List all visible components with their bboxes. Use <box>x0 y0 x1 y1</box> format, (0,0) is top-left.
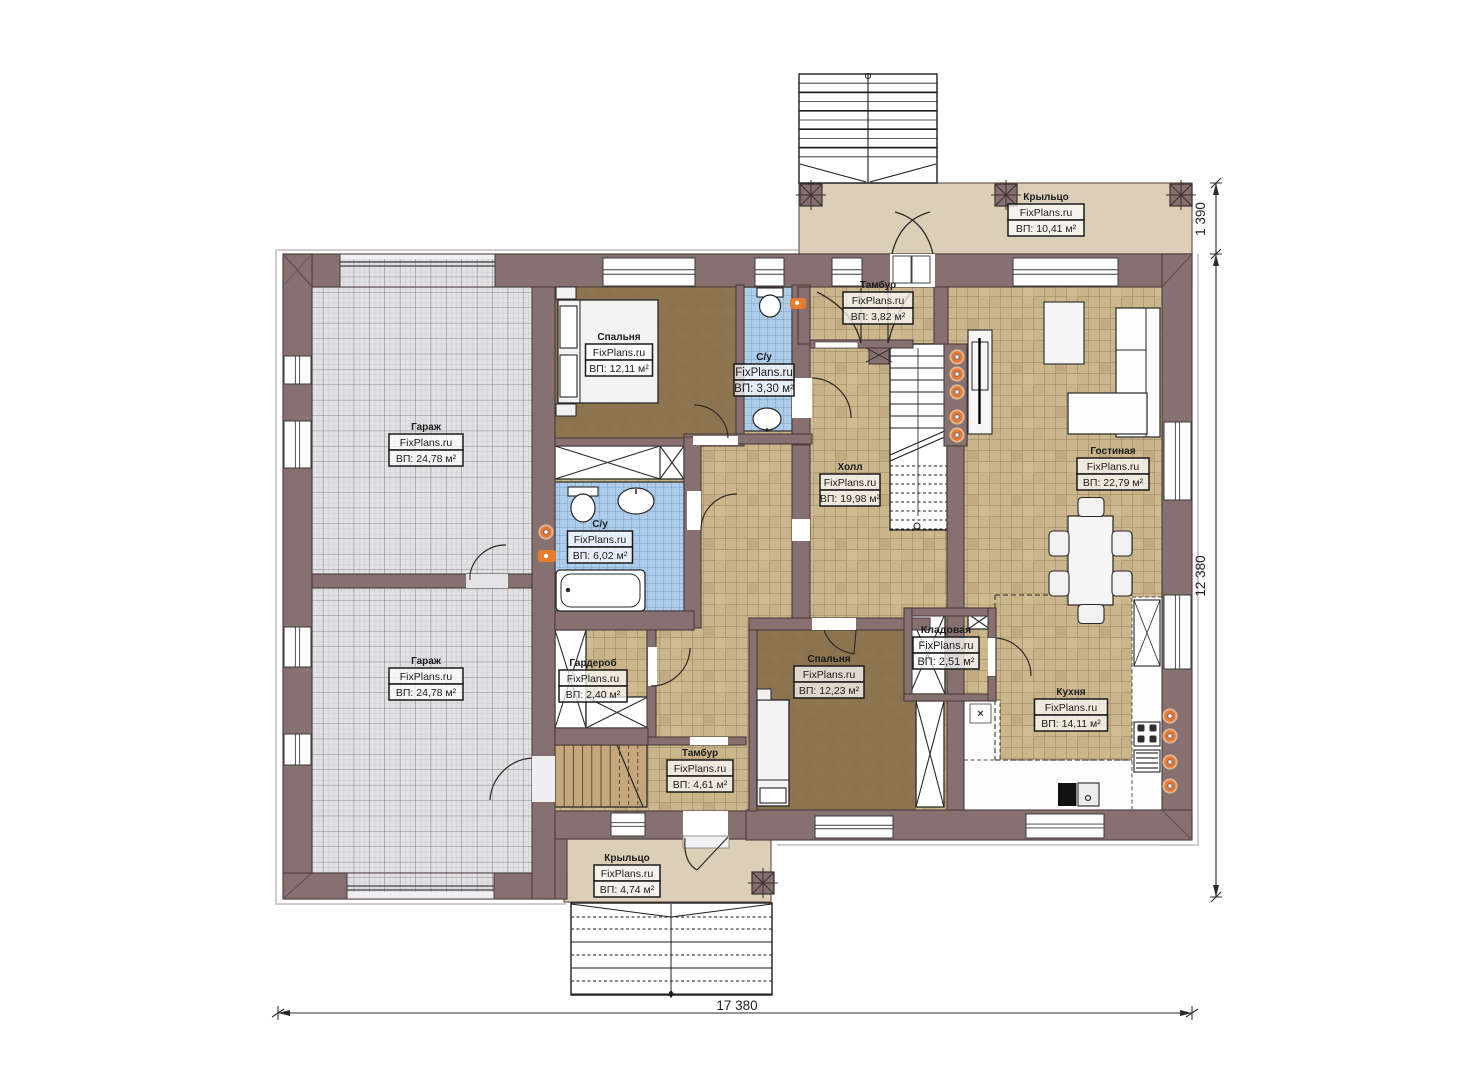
svg-text:Гардероб: Гардероб <box>569 657 616 669</box>
svg-text:ВП: 22,79 м²: ВП: 22,79 м² <box>1083 477 1144 489</box>
svg-text:ВП: 24,78 м²: ВП: 24,78 м² <box>396 687 457 699</box>
svg-text:FixPlans.ru: FixPlans.ru <box>1020 207 1073 219</box>
svg-text:ВП: 4,61 м²: ВП: 4,61 м² <box>673 779 728 791</box>
svg-text:12 380: 12 380 <box>1193 555 1208 596</box>
svg-text:17 380: 17 380 <box>716 998 757 1013</box>
svg-text:FixPlans.ru: FixPlans.ru <box>1087 461 1140 473</box>
svg-text:ВП: 2,40 м²: ВП: 2,40 м² <box>566 689 621 701</box>
svg-text:FixPlans.ru: FixPlans.ru <box>803 669 856 681</box>
svg-text:1 390: 1 390 <box>1193 202 1208 236</box>
svg-text:FixPlans.ru: FixPlans.ru <box>735 367 793 379</box>
svg-text:Тамбур: Тамбур <box>682 747 718 759</box>
svg-text:FixPlans.ru: FixPlans.ru <box>574 534 627 546</box>
svg-text:Кухня: Кухня <box>1056 687 1085 698</box>
svg-text:Крыльцо: Крыльцо <box>604 853 650 864</box>
svg-text:ВП: 4,74 м²: ВП: 4,74 м² <box>600 884 655 896</box>
svg-text:Гараж: Гараж <box>411 656 442 667</box>
svg-text:Гараж: Гараж <box>411 422 442 433</box>
svg-text:Холл: Холл <box>837 462 862 473</box>
svg-text:ВП: 12,11 м²: ВП: 12,11 м² <box>589 363 649 375</box>
svg-text:FixPlans.ru: FixPlans.ru <box>918 640 973 652</box>
svg-text:×: × <box>977 708 983 720</box>
svg-text:С/у: С/у <box>592 519 608 530</box>
svg-text:FixPlans.ru: FixPlans.ru <box>400 671 453 683</box>
svg-text:Тамбур: Тамбур <box>860 279 896 291</box>
svg-text:FixPlans.ru: FixPlans.ru <box>601 868 654 880</box>
svg-text:FixPlans.ru: FixPlans.ru <box>593 347 646 359</box>
svg-text:Спальня: Спальня <box>597 332 640 343</box>
svg-text:FixPlans.ru: FixPlans.ru <box>400 437 453 449</box>
svg-text:ВП: 14,11 м²: ВП: 14,11 м² <box>1041 718 1101 730</box>
svg-text:ВП: 3,30 м²: ВП: 3,30 м² <box>734 383 794 395</box>
svg-text:FixPlans.ru: FixPlans.ru <box>824 477 877 489</box>
svg-text:ВП: 10,41 м²: ВП: 10,41 м² <box>1016 223 1077 235</box>
svg-text:FixPlans.ru: FixPlans.ru <box>567 673 620 685</box>
svg-text:С/у: С/у <box>756 352 772 363</box>
svg-text:Спальня: Спальня <box>807 654 850 665</box>
svg-text:FixPlans.ru: FixPlans.ru <box>674 763 727 775</box>
svg-text:FixPlans.ru: FixPlans.ru <box>852 295 905 307</box>
svg-text:ВП: 19,98 м²: ВП: 19,98 м² <box>820 493 881 505</box>
svg-text:ВП: 6,02 м²: ВП: 6,02 м² <box>573 550 628 562</box>
svg-text:ВП: 3,82 м²: ВП: 3,82 м² <box>851 311 906 323</box>
svg-text:ВП: 12,23 м²: ВП: 12,23 м² <box>799 685 860 697</box>
svg-text:ВП: 2,51 м²: ВП: 2,51 м² <box>917 656 974 668</box>
svg-text:FixPlans.ru: FixPlans.ru <box>1045 702 1098 714</box>
svg-text:Кладовая: Кладовая <box>921 624 971 636</box>
svg-text:Гостиная: Гостиная <box>1090 446 1135 457</box>
svg-text:ВП: 24,78 м²: ВП: 24,78 м² <box>396 453 457 465</box>
svg-text:Крыльцо: Крыльцо <box>1023 192 1069 203</box>
